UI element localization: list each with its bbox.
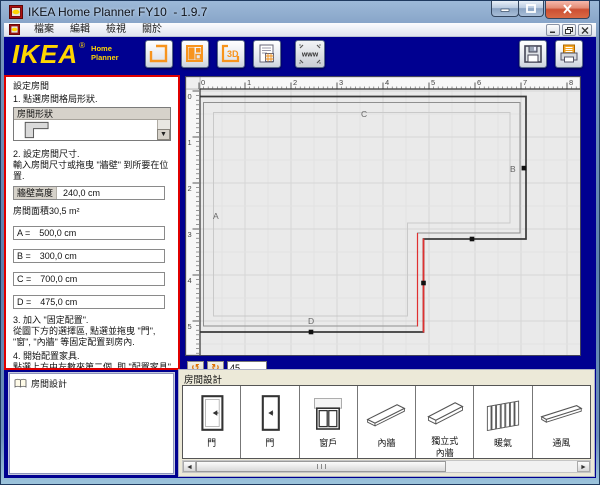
- radiator-icon: [480, 390, 526, 436]
- menu-file[interactable]: 檔案: [26, 23, 62, 36]
- 3d-view-icon: 3D: [219, 42, 243, 66]
- room-area-line: 房間面積30,5 m²: [13, 206, 171, 217]
- step4-label: 4. 開始配置家具.: [13, 351, 171, 362]
- title-bar[interactable]: IKEA Home Planner FY10 - 1.9.7: [1, 1, 599, 23]
- vertical-ruler: [186, 89, 200, 355]
- dimension-c-field[interactable]: C = 700,0 cm: [13, 272, 165, 286]
- handle-wall-d[interactable]: [309, 330, 314, 335]
- handle-notch-wall[interactable]: [470, 237, 475, 242]
- svg-text:3D: 3D: [227, 49, 239, 59]
- furniture-icon: [183, 42, 207, 66]
- room-design-palette: 房間設計 門 門: [178, 369, 595, 477]
- svg-text:6: 6: [477, 78, 481, 87]
- palette-scrollbar[interactable]: ◄ ►: [182, 460, 591, 473]
- svg-text:1: 1: [188, 138, 192, 147]
- room-shape-option[interactable]: [14, 120, 170, 140]
- chevron-down-icon[interactable]: ▼: [157, 129, 170, 140]
- book-icon: [14, 378, 27, 389]
- wall-height-label: 牆壁高度: [14, 187, 57, 199]
- item-list-tool-button[interactable]: [253, 40, 281, 68]
- dimension-d-field[interactable]: D = 475,0 cm: [13, 295, 165, 309]
- step1-label: 1. 點選房間格局形狀.: [13, 94, 171, 105]
- l-shape-room-icon: [17, 121, 57, 139]
- mdi-window-buttons: [546, 24, 592, 36]
- svg-text:4: 4: [188, 276, 192, 285]
- mdi-close-button[interactable]: [578, 24, 592, 36]
- door-icon: [250, 390, 290, 436]
- svg-text:3: 3: [188, 230, 192, 239]
- door-icon: [192, 390, 232, 436]
- room-design-list-title: 房間設計: [31, 377, 67, 390]
- www-globe-icon: www: [297, 42, 323, 66]
- room-area-label: 房間面積: [13, 206, 49, 216]
- app-icon: [9, 5, 23, 19]
- printer-icon: [557, 42, 581, 66]
- palette-item-inner-wall[interactable]: 內牆: [358, 386, 416, 458]
- minimize-button[interactable]: [491, 1, 519, 17]
- menu-view[interactable]: 檢視: [98, 23, 134, 36]
- svg-text:2: 2: [188, 184, 192, 193]
- menu-edit[interactable]: 編輯: [62, 23, 98, 36]
- registered-mark: ®: [79, 41, 85, 50]
- save-button[interactable]: [519, 40, 547, 68]
- ikea-logo-text: IKEA: [12, 40, 78, 68]
- step3-text: 從圖下方的選擇區, 點選並拖曳 "門", "窗", "內牆" 等固定配置到房內.: [13, 326, 171, 348]
- room-design-list-panel[interactable]: 房間設計: [9, 373, 174, 474]
- wall-label-a: A: [213, 211, 219, 221]
- window-icon: [308, 390, 348, 436]
- room-shape-tool-button[interactable]: [145, 40, 173, 68]
- scroll-right-arrow-icon[interactable]: ►: [577, 461, 590, 472]
- svg-text:7: 7: [523, 78, 527, 87]
- save-floppy-icon: [521, 42, 545, 66]
- wall-height-field[interactable]: 牆壁高度 240,0 cm: [13, 186, 165, 200]
- wall-label-c: C: [361, 109, 367, 119]
- palette-item-door-1[interactable]: 門: [183, 386, 241, 458]
- toolbar: IKEA ® HomePlanner 3D: [4, 37, 596, 73]
- step2-label: 2. 設定房間尺寸.: [13, 149, 171, 160]
- setup-room-panel: 設定房間 1. 點選房間格局形狀. 房間形狀 ▼ 2. 設定房間尺寸. 輸入房間…: [4, 75, 180, 370]
- ruler-corner: [186, 77, 200, 89]
- handle-selected-wall[interactable]: [421, 281, 426, 286]
- mdi-minimize-button[interactable]: [546, 24, 560, 36]
- main-area: 設定房間 1. 點選房間格局形狀. 房間形狀 ▼ 2. 設定房間尺寸. 輸入房間…: [4, 73, 596, 478]
- item-list-icon: [255, 42, 279, 66]
- close-button[interactable]: [545, 1, 590, 19]
- menu-app-icon[interactable]: [9, 24, 20, 35]
- svg-text:8: 8: [569, 78, 573, 87]
- palette-item-door-2[interactable]: 門: [241, 386, 299, 458]
- view-3d-tool-button[interactable]: 3D: [217, 40, 245, 68]
- step3-label: 3. 加入 "固定配置".: [13, 315, 171, 326]
- svg-text:2: 2: [293, 78, 297, 87]
- menu-bar: 檔案 編輯 檢視 關於: [4, 23, 596, 37]
- step4-text: 點選上方由左數來第二個, 即 "配置家具" 鈕, 以便開始加入IKEA產品.: [13, 362, 171, 370]
- inner-wall-icon: [363, 390, 409, 436]
- palette-item-freestanding-wall[interactable]: 獨立式 內牆: [416, 386, 474, 458]
- vent-icon: [538, 390, 584, 436]
- place-furniture-tool-button[interactable]: [181, 40, 209, 68]
- handle-wall-b[interactable]: [522, 166, 527, 171]
- palette-item-vent[interactable]: 通風: [533, 386, 590, 458]
- www-tool-button[interactable]: www: [295, 40, 325, 68]
- freestanding-wall-icon: [422, 390, 468, 434]
- palette-item-radiator[interactable]: 暖氣: [474, 386, 532, 458]
- panel-title: 設定房間: [13, 81, 171, 92]
- ikea-logo: IKEA ® HomePlanner: [12, 40, 119, 68]
- svg-text:www: www: [301, 52, 319, 59]
- floor-plan-canvas[interactable]: C A B D 012345678012345: [185, 76, 581, 356]
- svg-text:0: 0: [188, 92, 192, 101]
- room-shape-dropdown-header: 房間形狀: [14, 108, 170, 120]
- svg-text:5: 5: [431, 78, 435, 87]
- window-title: IKEA Home Planner FY10 - 1.9.7: [28, 5, 207, 19]
- svg-text:5: 5: [188, 322, 192, 331]
- dimension-b-field[interactable]: B = 300,0 cm: [13, 249, 165, 263]
- palette-item-window[interactable]: 窗戶: [300, 386, 358, 458]
- svg-text:4: 4: [385, 78, 389, 87]
- scrollbar-track[interactable]: [196, 461, 577, 472]
- wall-label-d: D: [308, 316, 314, 326]
- scrollbar-thumb[interactable]: [196, 461, 446, 472]
- maximize-button[interactable]: [518, 1, 544, 17]
- room-shape-icon: [147, 42, 171, 66]
- room-area-value: 30,5 m²: [49, 206, 80, 216]
- menu-about[interactable]: 關於: [134, 23, 170, 36]
- app-window: IKEA Home Planner FY10 - 1.9.7 檔案 編輯 檢視 …: [0, 0, 600, 485]
- svg-text:1: 1: [247, 78, 251, 87]
- scroll-left-arrow-icon[interactable]: ◄: [183, 461, 196, 472]
- print-button[interactable]: [555, 40, 583, 68]
- svg-text:0: 0: [201, 78, 205, 87]
- dimension-a-field[interactable]: A = 500,0 cm: [13, 226, 165, 240]
- room-shape-dropdown[interactable]: 房間形狀 ▼: [13, 107, 171, 141]
- mdi-restore-button[interactable]: [562, 24, 576, 36]
- home-planner-label: HomePlanner: [91, 45, 119, 62]
- step2-text: 輸入房間尺寸或拖曳 "牆壁" 到所要在位置.: [13, 160, 171, 182]
- wall-height-value: 240,0 cm: [57, 188, 100, 199]
- palette-items: 門 門 窗戶: [182, 385, 591, 459]
- svg-text:3: 3: [339, 78, 343, 87]
- wall-label-b: B: [510, 164, 516, 174]
